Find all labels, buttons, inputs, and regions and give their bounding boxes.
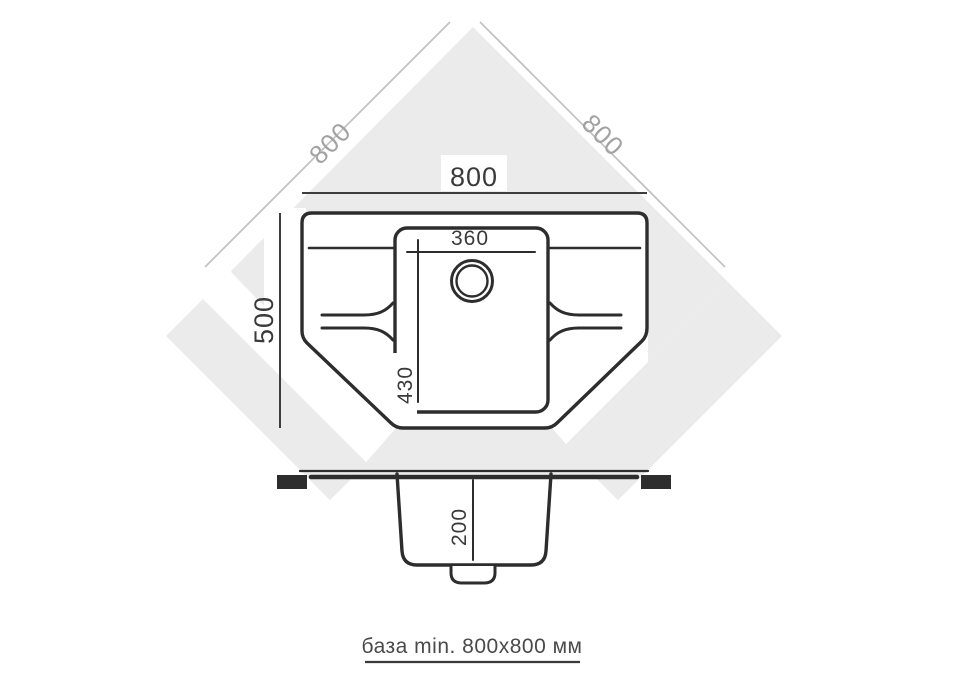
bowl-length-dim-label: 430 <box>394 366 417 404</box>
base-size-caption: база min. 800x800 мм <box>362 635 583 658</box>
drain-fitting-front <box>451 566 495 583</box>
depth-dim-label: 500 <box>249 296 279 344</box>
bowl-width-dim-label: 360 <box>451 227 489 250</box>
right-mounting-clamp <box>641 475 671 489</box>
countertop-right-notch <box>595 477 641 500</box>
sink-diagram-canvas: 800 800 800 500 360 430 <box>0 0 966 685</box>
left-mounting-clamp <box>277 475 307 489</box>
countertop-center-strip <box>353 428 595 477</box>
bowl-depth-dim-label: 200 <box>448 508 471 546</box>
top-width-dim-label: 800 <box>450 162 498 192</box>
diagram-page: 800 800 800 500 360 430 <box>0 0 966 685</box>
countertop-corridor-sliver <box>231 238 264 306</box>
countertop-left-notch <box>307 477 353 500</box>
